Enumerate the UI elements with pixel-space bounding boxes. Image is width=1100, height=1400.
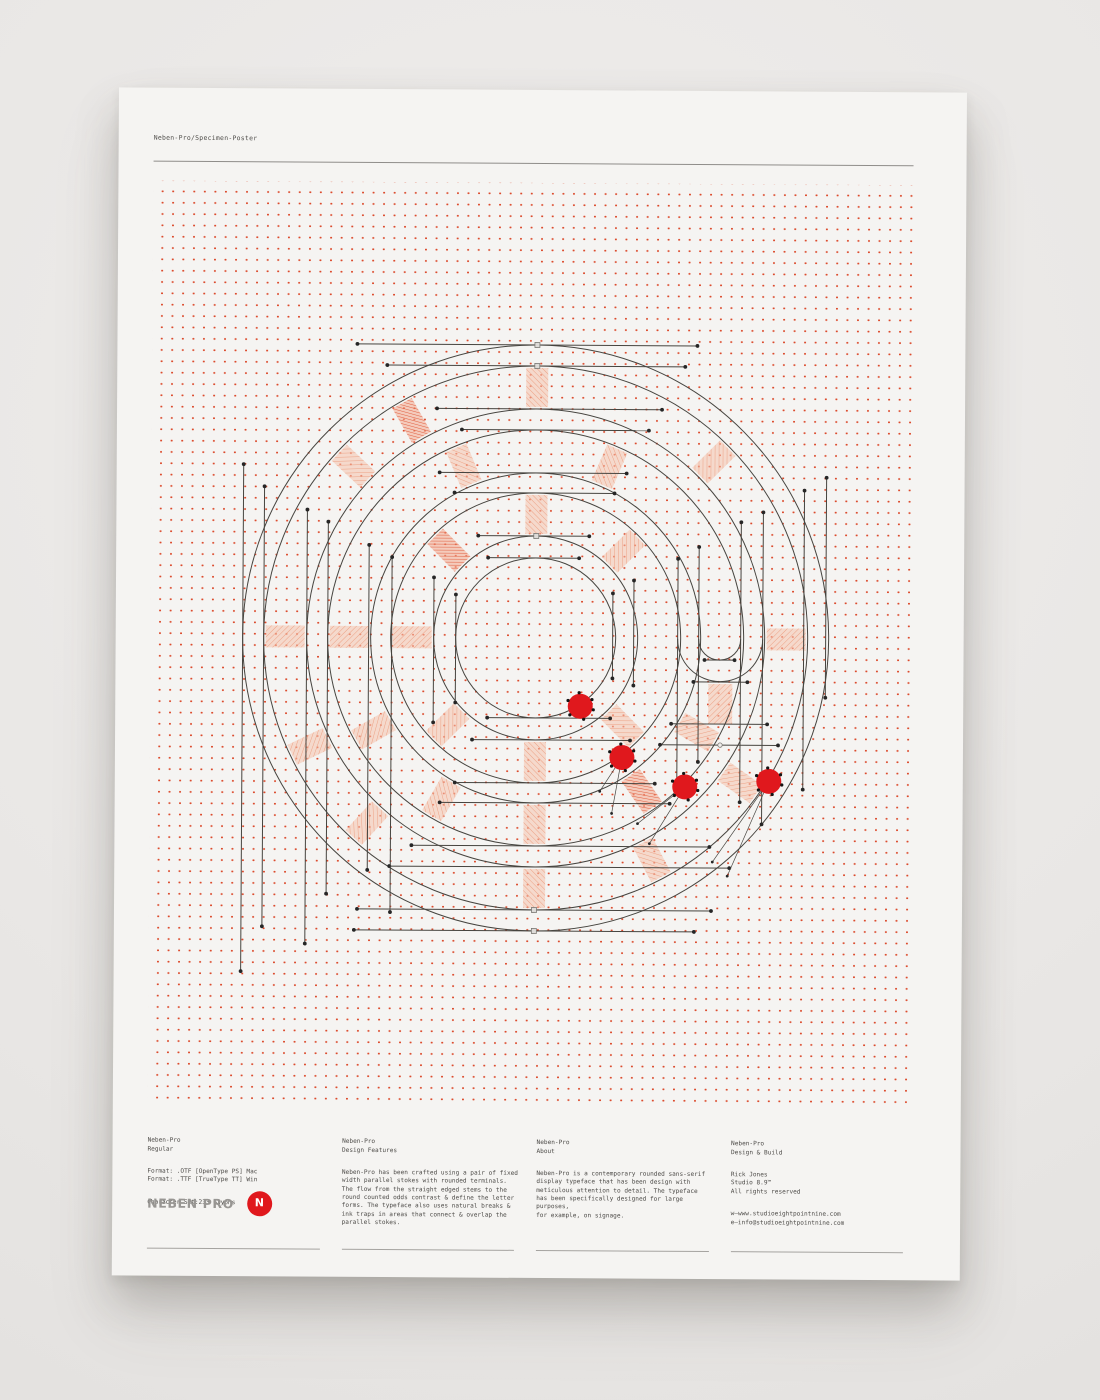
spokes xyxy=(264,366,807,909)
contact-links: w—www.studioeightpointnine.com e—info@st… xyxy=(731,1210,908,1228)
dot-grid xyxy=(148,181,914,1106)
glyph-rings xyxy=(241,343,831,933)
poster-header-title: Neben-Pro/Specimen-Poster xyxy=(154,134,258,143)
column-rule xyxy=(730,1251,903,1253)
design-features-text: Neben-Pro has been crafted using a pair … xyxy=(342,1169,519,1228)
footer-col-regular: Neben-Pro Regular Format: .OTF [OpenType… xyxy=(147,1129,324,1250)
scene-background: Neben-Pro/Specimen-Poster Neben-Pro Regu… xyxy=(0,0,1100,1400)
logo-n-badge: N xyxy=(247,1191,272,1216)
column-rule xyxy=(536,1250,709,1252)
logo-wordmark: NEBEN PRO xyxy=(147,1195,234,1213)
poster-paper: Neben-Pro/Specimen-Poster Neben-Pro Regu… xyxy=(112,87,967,1280)
column-rule xyxy=(341,1248,514,1250)
footer-col-about: Neben-Pro About Neben-Pro is a contempor… xyxy=(536,1131,713,1252)
format-info: Format: .OTF [OpenType PS] Mac Format: .… xyxy=(147,1168,324,1186)
credits-text: Rick Jones Studio 8.9™ All rights reserv… xyxy=(731,1171,908,1197)
footer: Neben-Pro Regular Format: .OTF [OpenType… xyxy=(147,1129,908,1238)
logo: NEBEN PRO N xyxy=(147,1191,272,1217)
footer-col-heading: Neben-Pro Design Features xyxy=(342,1138,519,1156)
column-rule xyxy=(147,1247,320,1249)
footer-col-design-build: Neben-Pro Design & Build Rick Jones Stud… xyxy=(730,1132,907,1253)
at-glyph-construction-drawing xyxy=(148,181,914,1106)
footer-col-heading: Neben-Pro Regular xyxy=(147,1137,324,1155)
footer-col-design-features: Neben-Pro Design Features Neben-Pro has … xyxy=(341,1130,518,1251)
about-text: Neben-Pro is a contemporary rounded sans… xyxy=(536,1170,713,1221)
header-rule xyxy=(154,161,914,167)
footer-col-heading: Neben-Pro Design & Build xyxy=(731,1140,908,1158)
footer-col-heading: Neben-Pro About xyxy=(536,1139,713,1157)
